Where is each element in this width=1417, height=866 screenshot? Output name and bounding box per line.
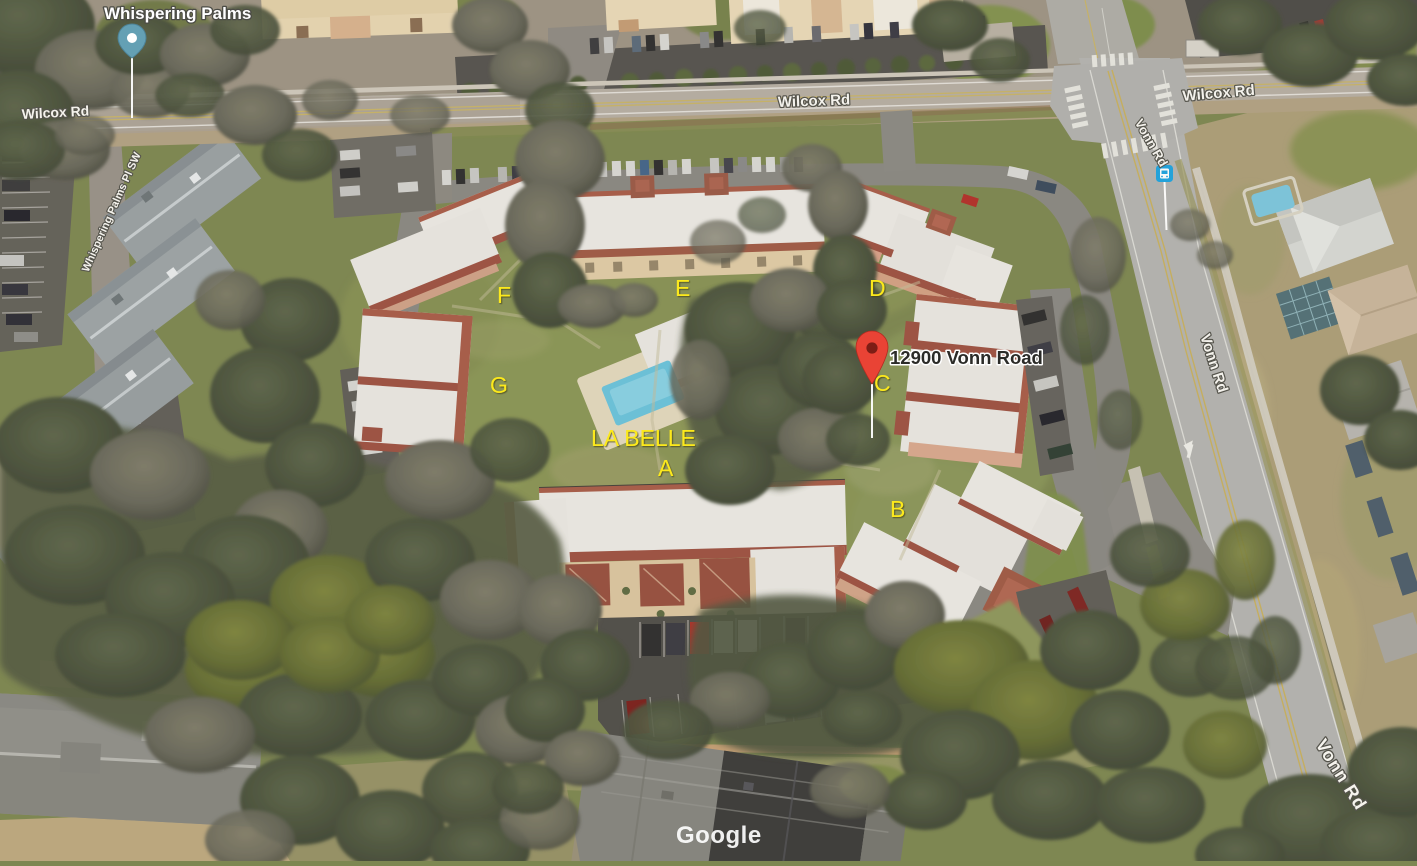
svg-text:G: G	[490, 372, 508, 398]
svg-text:E: E	[675, 275, 690, 301]
svg-text:Wilcox Rd: Wilcox Rd	[778, 91, 851, 111]
svg-text:LA BELLE: LA BELLE	[591, 425, 696, 451]
svg-text:Google: Google	[676, 822, 762, 849]
svg-text:B: B	[890, 496, 905, 522]
svg-text:Whispering Palms: Whispering Palms	[104, 4, 251, 23]
svg-text:12900 Vonn Road: 12900 Vonn Road	[890, 347, 1043, 368]
svg-text:A: A	[658, 455, 674, 481]
svg-text:F: F	[497, 282, 511, 308]
svg-text:D: D	[869, 275, 886, 301]
